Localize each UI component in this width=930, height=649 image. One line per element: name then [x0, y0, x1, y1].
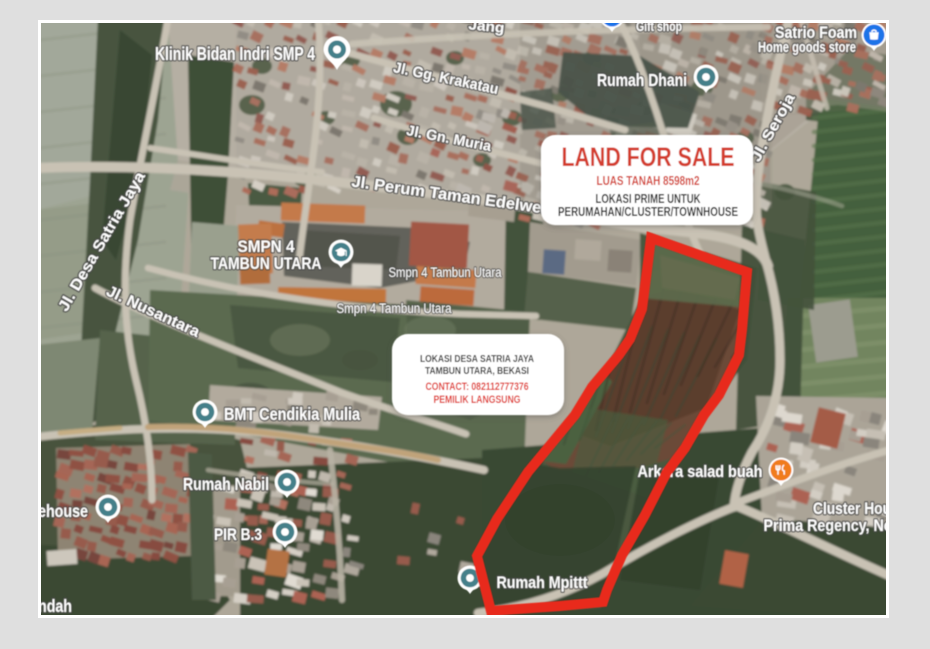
svg-text:Rumah Mpittt: Rumah Mpittt [497, 573, 588, 592]
svg-text:LAND FOR SALE: LAND FOR SALE [562, 142, 735, 172]
svg-text:PIR B.3: PIR B.3 [214, 525, 262, 544]
svg-text:Klinik Bidan Indri SMP 4: Klinik Bidan Indri SMP 4 [155, 44, 315, 64]
svg-text:Arkara salad buah: Arkara salad buah [638, 462, 763, 481]
svg-text:Smpn 4 Tambun Utara: Smpn 4 Tambun Utara [389, 265, 502, 280]
svg-text:Smpn 4 Tambun Utara: Smpn 4 Tambun Utara [337, 301, 452, 316]
svg-text:LOKASI DESA SATRIA JAYA: LOKASI DESA SATRIA JAYA [420, 353, 534, 365]
svg-text:Home goods store: Home goods store [758, 40, 856, 56]
svg-text:LOKASI PRIME UNTUK: LOKASI PRIME UNTUK [596, 192, 701, 206]
svg-text:PEMILIK LANGSUNG: PEMILIK LANGSUNG [434, 394, 521, 406]
svg-text:Rumah Nabil: Rumah Nabil [183, 474, 269, 494]
svg-text:Rumah Dhani: Rumah Dhani [597, 70, 687, 90]
svg-text:CONTACT: 082112777376: CONTACT: 082112777376 [426, 381, 529, 393]
svg-text:ndah: ndah [38, 596, 72, 616]
svg-text:BMT Cendikia Mulia: BMT Cendikia Mulia [224, 404, 360, 424]
svg-text:TAMBUN UTARA: TAMBUN UTARA [211, 254, 322, 273]
svg-text:PERUMAHAN/CLUSTER/TOWNHOUSE: PERUMAHAN/CLUSTER/TOWNHOUSE [558, 205, 738, 219]
svg-text:Prima Regency, No: Prima Regency, No [764, 516, 893, 535]
svg-text:TAMBUN UTARA, BEKASI: TAMBUN UTARA, BEKASI [425, 365, 529, 377]
svg-text:ehouse: ehouse [38, 501, 88, 521]
svg-text:LUAS TANAH 8598m2: LUAS TANAH 8598m2 [597, 173, 700, 188]
